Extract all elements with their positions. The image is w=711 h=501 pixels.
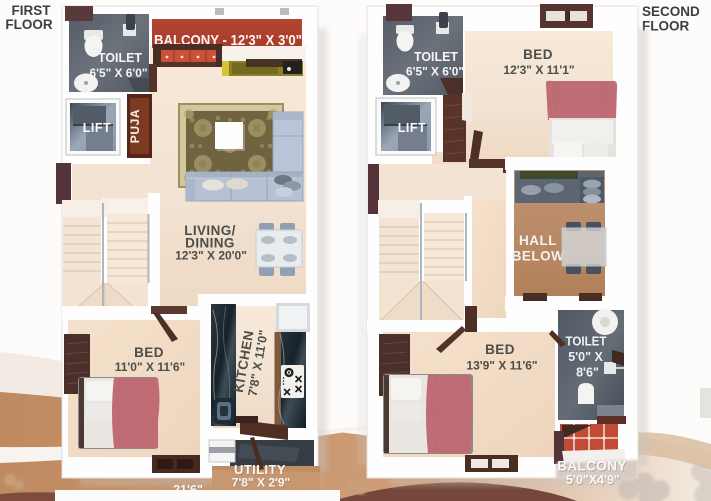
svg-text:FLOOR: FLOOR [5,17,52,32]
svg-text:FLOOR: FLOOR [642,19,689,34]
svg-text:7'8" X 2'9": 7'8" X 2'9" [232,476,290,490]
svg-text:6'5" X 6'0": 6'5" X 6'0" [406,65,464,79]
svg-text:12'3" X 11'1": 12'3" X 11'1" [503,63,574,77]
svg-text:TOILET: TOILET [98,50,142,65]
svg-text:SECOND: SECOND [642,4,700,19]
svg-text:BELOW: BELOW [512,249,565,264]
svg-text:LIFT: LIFT [398,121,426,135]
svg-text:BED: BED [523,47,553,62]
svg-text:11'0" X 11'6": 11'0" X 11'6" [115,360,185,374]
svg-text:LIFT: LIFT [83,121,111,135]
svg-text:6'5" X 6'0": 6'5" X 6'0" [90,66,148,80]
svg-text:TOILET: TOILET [566,334,607,349]
svg-text:TOILET: TOILET [414,49,458,64]
svg-text:12'3" X 20'0": 12'3" X 20'0" [175,249,247,263]
svg-text:BED: BED [485,342,515,357]
svg-text:5'0"X4'9": 5'0"X4'9" [566,473,620,487]
svg-text:8'6": 8'6" [576,366,599,380]
svg-text:13'9" X 11'6": 13'9" X 11'6" [466,359,537,373]
svg-text:BALCONY: BALCONY [557,459,627,474]
svg-text:FIRST: FIRST [12,3,52,18]
svg-text:PUJA: PUJA [128,109,142,143]
svg-text:BED: BED [134,345,164,360]
svg-text:5'0" X: 5'0" X [568,350,603,364]
svg-text:HALL: HALL [519,233,557,248]
